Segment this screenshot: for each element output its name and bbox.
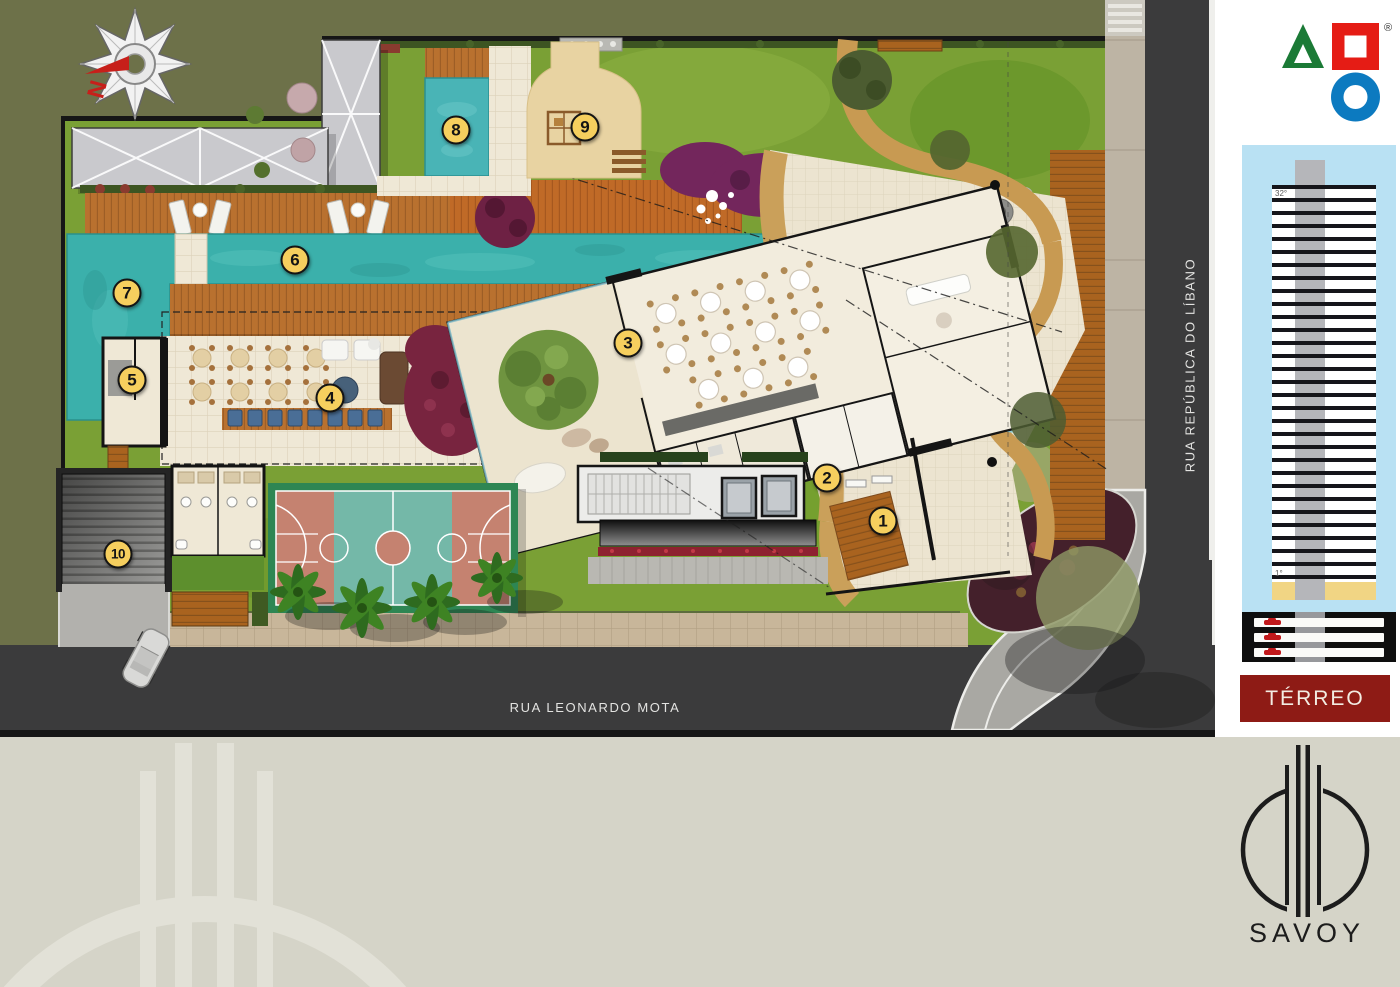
watermark-bar xyxy=(140,771,156,987)
purple-tree xyxy=(475,188,535,248)
registered-mark: ® xyxy=(1384,22,1392,34)
divider-strip xyxy=(0,730,1215,737)
plan-marker-7: 7 xyxy=(113,279,142,308)
changing-rooms xyxy=(172,466,268,626)
plan-marker-2: 2 xyxy=(813,464,842,493)
plan-marker-6: 6 xyxy=(281,246,310,275)
garage-ramp xyxy=(56,468,172,592)
building-elevation: 32° 1° xyxy=(1242,145,1396,612)
floor-level-badge: TÉRREO xyxy=(1240,675,1390,722)
first-floor-label: 1° xyxy=(1275,569,1283,578)
sidebar: ® 32° 1° TÉRREO xyxy=(1215,0,1400,737)
rock xyxy=(291,138,315,162)
plan-marker-10: 10 xyxy=(104,540,133,569)
site-plan: N 1 2 3 4 5 6 7 8 9 10 RUA LEONARDO MOTA… xyxy=(0,0,1215,730)
car-icon xyxy=(1264,635,1281,640)
plan-marker-3: 3 xyxy=(614,329,643,358)
plan-marker-1: 1 xyxy=(869,507,898,536)
watermark-bar xyxy=(257,771,273,987)
rock xyxy=(287,83,317,113)
elevation-ground-floor xyxy=(1272,582,1376,600)
watermark-circle xyxy=(0,896,473,987)
car-icon xyxy=(1264,650,1281,655)
plan-marker-5: 5 xyxy=(118,366,147,395)
parking-levels xyxy=(1242,612,1396,662)
street-name-bottom: RUA LEONARDO MOTA xyxy=(455,700,735,715)
watermark-bar xyxy=(217,743,234,987)
street-name-right: RUA REPÚBLICA DO LÍBANO xyxy=(1183,258,1198,473)
hedge xyxy=(327,41,1105,48)
legend-panel: 1ACESSO PEDESTRE 2RECEPÇÃO 3SALÃO DE FES… xyxy=(0,737,1400,987)
top-floor-label: 32° xyxy=(1275,189,1287,198)
plan-marker-9: 9 xyxy=(571,113,600,142)
site-plan-poster: N 1 2 3 4 5 6 7 8 9 10 RUA LEONARDO MOTA… xyxy=(0,0,1400,987)
fence-top xyxy=(322,36,1105,41)
watermark-bar xyxy=(175,743,192,987)
savoy-logo xyxy=(1237,745,1377,920)
brand-name: SAVOY xyxy=(1237,918,1377,949)
car-icon xyxy=(1264,620,1281,625)
plan-marker-8: 8 xyxy=(442,116,471,145)
plan-marker-4: 4 xyxy=(316,384,345,413)
developer-logo: ® xyxy=(1270,18,1395,133)
elevation-core xyxy=(1295,160,1325,185)
compass-icon: N xyxy=(75,4,195,124)
elevation-tower xyxy=(1272,185,1376,582)
glass-canopy xyxy=(600,520,816,546)
